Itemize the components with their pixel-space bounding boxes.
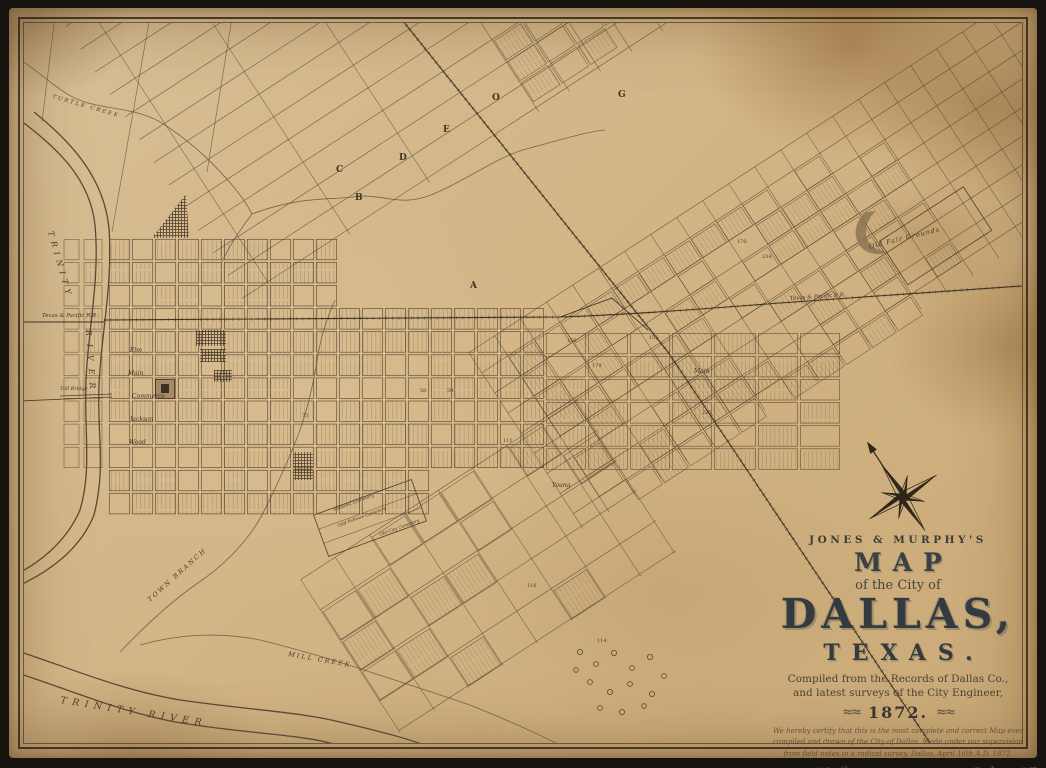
city-block — [293, 355, 313, 376]
city-block — [270, 286, 290, 307]
city-block — [247, 447, 267, 468]
city-block — [109, 378, 129, 399]
city-block — [477, 401, 497, 422]
city-block — [339, 401, 359, 422]
city-block — [664, 0, 703, 9]
block-number: 114 — [597, 638, 607, 644]
city-block — [316, 424, 336, 445]
city-block — [201, 493, 221, 514]
city-block — [293, 239, 313, 259]
wood-street-label: Wood — [129, 439, 146, 446]
river-block — [64, 424, 79, 445]
city-block — [201, 424, 221, 445]
city-block — [431, 424, 451, 445]
turtle-creek-path — [12, 55, 252, 214]
city-block — [224, 470, 244, 491]
city-block — [270, 262, 290, 283]
city-block — [861, 257, 897, 291]
city-block — [109, 309, 129, 330]
city-block — [109, 493, 129, 514]
city-block — [673, 426, 712, 447]
city-block — [224, 424, 244, 445]
year-text: 1872. — [868, 703, 928, 722]
city-block — [247, 239, 267, 259]
city-block — [358, 568, 409, 617]
river-block — [64, 355, 79, 376]
signature-left-name: S. W. S. Simmons — [755, 762, 893, 768]
river-block — [64, 447, 79, 468]
city-block — [801, 449, 840, 470]
city-block — [759, 426, 798, 447]
city-block — [155, 493, 175, 514]
city-block — [224, 262, 244, 283]
city-block — [715, 333, 756, 354]
block-letter: G — [618, 90, 626, 100]
city-block — [178, 332, 198, 353]
block-letter: E — [443, 125, 450, 135]
main-street-east-label: Main — [693, 368, 710, 375]
commerce-street-label: Commerce — [132, 393, 165, 400]
city-block — [339, 424, 359, 445]
city-block — [441, 471, 492, 520]
young-street-label: Young — [552, 482, 571, 489]
city-block — [247, 262, 267, 283]
city-block — [178, 424, 198, 445]
city-block — [385, 378, 405, 399]
city-block — [408, 447, 428, 468]
city-block — [477, 332, 497, 353]
city-block — [385, 332, 405, 353]
block-letter: A — [469, 281, 478, 291]
city-block — [801, 403, 840, 424]
city-block — [316, 401, 336, 422]
city-block — [109, 355, 129, 376]
city-block — [316, 262, 336, 283]
city-block — [293, 262, 313, 283]
park-trees — [574, 649, 667, 714]
city-block — [362, 424, 382, 445]
city-block — [715, 426, 756, 447]
city-block — [362, 355, 382, 376]
city-block — [270, 470, 290, 491]
river-block — [84, 262, 102, 283]
city-block — [109, 424, 129, 445]
city-block — [155, 424, 175, 445]
city-block — [178, 286, 198, 307]
city-block — [408, 424, 428, 445]
certification-line-1: We hereby certify that this is the most … — [752, 726, 1044, 738]
city-block — [801, 426, 840, 447]
block-number: 116 — [527, 583, 537, 589]
city-block — [454, 355, 474, 376]
city-block — [316, 355, 336, 376]
city-block — [454, 424, 474, 445]
city-block — [132, 470, 152, 491]
city-block — [454, 447, 474, 468]
city-block — [431, 401, 451, 422]
block-number: 150 — [567, 338, 577, 344]
city-block — [109, 447, 129, 468]
city-block — [926, 243, 962, 277]
city-block — [580, 0, 619, 4]
city-block — [270, 493, 290, 514]
city-block — [339, 470, 359, 491]
city-block — [247, 332, 267, 353]
city-block — [293, 493, 313, 514]
city-block — [178, 239, 198, 259]
flourish-left: ≈≈ — [842, 705, 860, 720]
river-block — [64, 332, 79, 353]
city-block — [109, 401, 129, 422]
city-block — [293, 378, 313, 399]
north-arrow — [871, 448, 903, 497]
city-block — [431, 309, 451, 330]
block-number: 59 — [447, 388, 453, 394]
town-branch-label: TOWN BRANCH — [146, 546, 208, 603]
city-block — [270, 401, 290, 422]
city-block — [155, 470, 175, 491]
city-block — [247, 378, 267, 399]
city-block — [201, 262, 221, 283]
city-block — [461, 501, 512, 550]
city-block — [454, 309, 474, 330]
city-block — [385, 493, 405, 514]
block-number: 152 — [649, 335, 659, 341]
city-block — [178, 447, 198, 468]
city-block — [477, 424, 497, 445]
block-number: 111 — [503, 438, 513, 444]
city-block — [316, 470, 336, 491]
city-block — [362, 447, 382, 468]
block-number: 234 — [762, 254, 772, 260]
city-block — [339, 332, 359, 353]
city-block — [454, 378, 474, 399]
city-block — [155, 309, 175, 330]
ne-branch-path — [252, 130, 605, 214]
city-name: DALLAS, — [752, 593, 1044, 636]
block-letter: O — [492, 93, 500, 103]
city-block — [247, 424, 267, 445]
city-block — [155, 239, 175, 259]
city-block — [132, 493, 152, 514]
city-block — [759, 403, 798, 424]
city-block — [431, 447, 451, 468]
certification-line-3: from field notes in a radical survey. Da… — [752, 749, 1044, 761]
city-block — [178, 355, 198, 376]
city-block — [270, 378, 290, 399]
city-block — [385, 424, 405, 445]
city-block — [622, 0, 661, 7]
certification-line-2: compiled and drawn of the City of Dallas… — [752, 737, 1044, 749]
city-block — [339, 378, 359, 399]
city-block — [385, 355, 405, 376]
mill-creek-label: MILL CREEK — [287, 650, 353, 669]
river-block — [64, 401, 79, 422]
main-street-label: Main — [127, 370, 144, 377]
river-block — [64, 239, 79, 259]
map-word: MAP — [752, 549, 1044, 577]
city-block — [316, 447, 336, 468]
city-block — [270, 355, 290, 376]
block-number: 170 — [737, 239, 747, 245]
jackson-street-label: Jackson — [128, 416, 154, 423]
city-block — [554, 570, 605, 619]
city-block — [500, 309, 520, 330]
city-block — [270, 447, 290, 468]
trinity-left-label: TRINITY — [46, 230, 74, 300]
north-arrowhead — [864, 439, 877, 453]
city-block — [385, 401, 405, 422]
city-block — [431, 355, 451, 376]
map-sheet: TRINITY RIVER TRINITY RIVER TURTLE CREEK… — [0, 0, 1046, 768]
title-cartouche: JONES & MURPHY'S MAP of the City of DALL… — [752, 534, 1044, 768]
city-block — [201, 470, 221, 491]
city-block — [385, 447, 405, 468]
compass-rose — [834, 420, 959, 552]
toll-bridge-label: Toll Bridge — [60, 386, 88, 392]
city-block — [270, 332, 290, 353]
city-block — [109, 286, 129, 307]
signature-right-name: Wm. M. Johnson — [903, 762, 1040, 768]
city-block — [270, 424, 290, 445]
city-block — [178, 493, 198, 514]
flourish-right: ≈≈ — [936, 705, 954, 720]
compiled-line-1: Compiled from the Records of Dallas Co., — [752, 672, 1044, 686]
city-block — [201, 401, 221, 422]
river-block — [84, 239, 102, 259]
city-block — [247, 493, 267, 514]
city-block — [247, 470, 267, 491]
city-block — [759, 449, 798, 470]
city-block — [155, 262, 175, 283]
city-block — [397, 629, 448, 678]
city-block — [293, 424, 313, 445]
block-number: 225 — [702, 410, 712, 416]
city-block — [362, 378, 382, 399]
city-block — [132, 239, 152, 259]
city-block — [201, 286, 221, 307]
block-letter: C — [336, 165, 343, 175]
city-block — [293, 332, 313, 353]
city-block — [477, 447, 497, 468]
old-city-cemetery-label: Old City Cemetery — [379, 518, 421, 538]
city-block — [155, 447, 175, 468]
city-block — [224, 447, 244, 468]
city-block — [224, 401, 244, 422]
city-block — [132, 262, 152, 283]
city-block — [155, 401, 175, 422]
city-block — [224, 332, 244, 353]
block-number: 179 — [592, 363, 602, 369]
city-block — [408, 355, 428, 376]
city-block — [362, 332, 382, 353]
city-block — [316, 378, 336, 399]
city-block — [362, 470, 382, 491]
city-block — [431, 332, 451, 353]
city-block — [316, 239, 336, 259]
city-block — [155, 332, 175, 353]
city-block — [339, 355, 359, 376]
city-block — [178, 262, 198, 283]
city-block — [247, 355, 267, 376]
city-block — [178, 470, 198, 491]
state-name: TEXAS. — [752, 640, 1044, 666]
turtle-creek-label: TURTLE CREEK — [51, 94, 120, 119]
city-block — [178, 378, 198, 399]
city-block — [500, 378, 520, 399]
city-block — [339, 447, 359, 468]
city-block — [631, 403, 670, 424]
publisher-line: JONES & MURPHY'S — [752, 534, 1044, 546]
city-block — [362, 401, 382, 422]
city-block — [109, 262, 129, 283]
block-number: 75 — [302, 413, 308, 419]
city-block — [155, 286, 175, 307]
city-block — [408, 401, 428, 422]
elm-street-label: Elm — [129, 347, 142, 354]
city-block — [224, 493, 244, 514]
city-block — [730, 284, 766, 318]
city-block — [477, 355, 497, 376]
block-number: 58 — [420, 388, 426, 394]
city-block — [132, 447, 152, 468]
city-block — [593, 0, 632, 25]
city-block — [385, 309, 405, 330]
city-block — [408, 493, 428, 514]
compiled-line-2: and latest surveys of the City Engineer, — [752, 686, 1044, 700]
city-block — [201, 447, 221, 468]
city-block — [178, 401, 198, 422]
city-block — [224, 286, 244, 307]
city-block — [451, 637, 502, 686]
city-block — [155, 355, 175, 376]
city-block — [109, 470, 129, 491]
block-letter: D — [399, 153, 407, 163]
city-block — [132, 286, 152, 307]
tp-rr-west-label: Texas & Pacific R.R. — [42, 313, 98, 319]
certification-text: We hereby certify that this is the most … — [752, 726, 1044, 761]
city-block — [270, 239, 290, 259]
city-block — [293, 286, 313, 307]
city-block — [454, 332, 474, 353]
city-block — [247, 401, 267, 422]
year-line: ≈≈ 1872. ≈≈ — [752, 703, 1044, 722]
block-letter: B — [355, 193, 363, 203]
rural-roads — [42, 16, 232, 232]
city-block — [109, 332, 129, 353]
compass-ray-dark — [867, 493, 903, 519]
city-block — [109, 239, 129, 259]
city-block — [454, 401, 474, 422]
city-block — [408, 332, 428, 353]
